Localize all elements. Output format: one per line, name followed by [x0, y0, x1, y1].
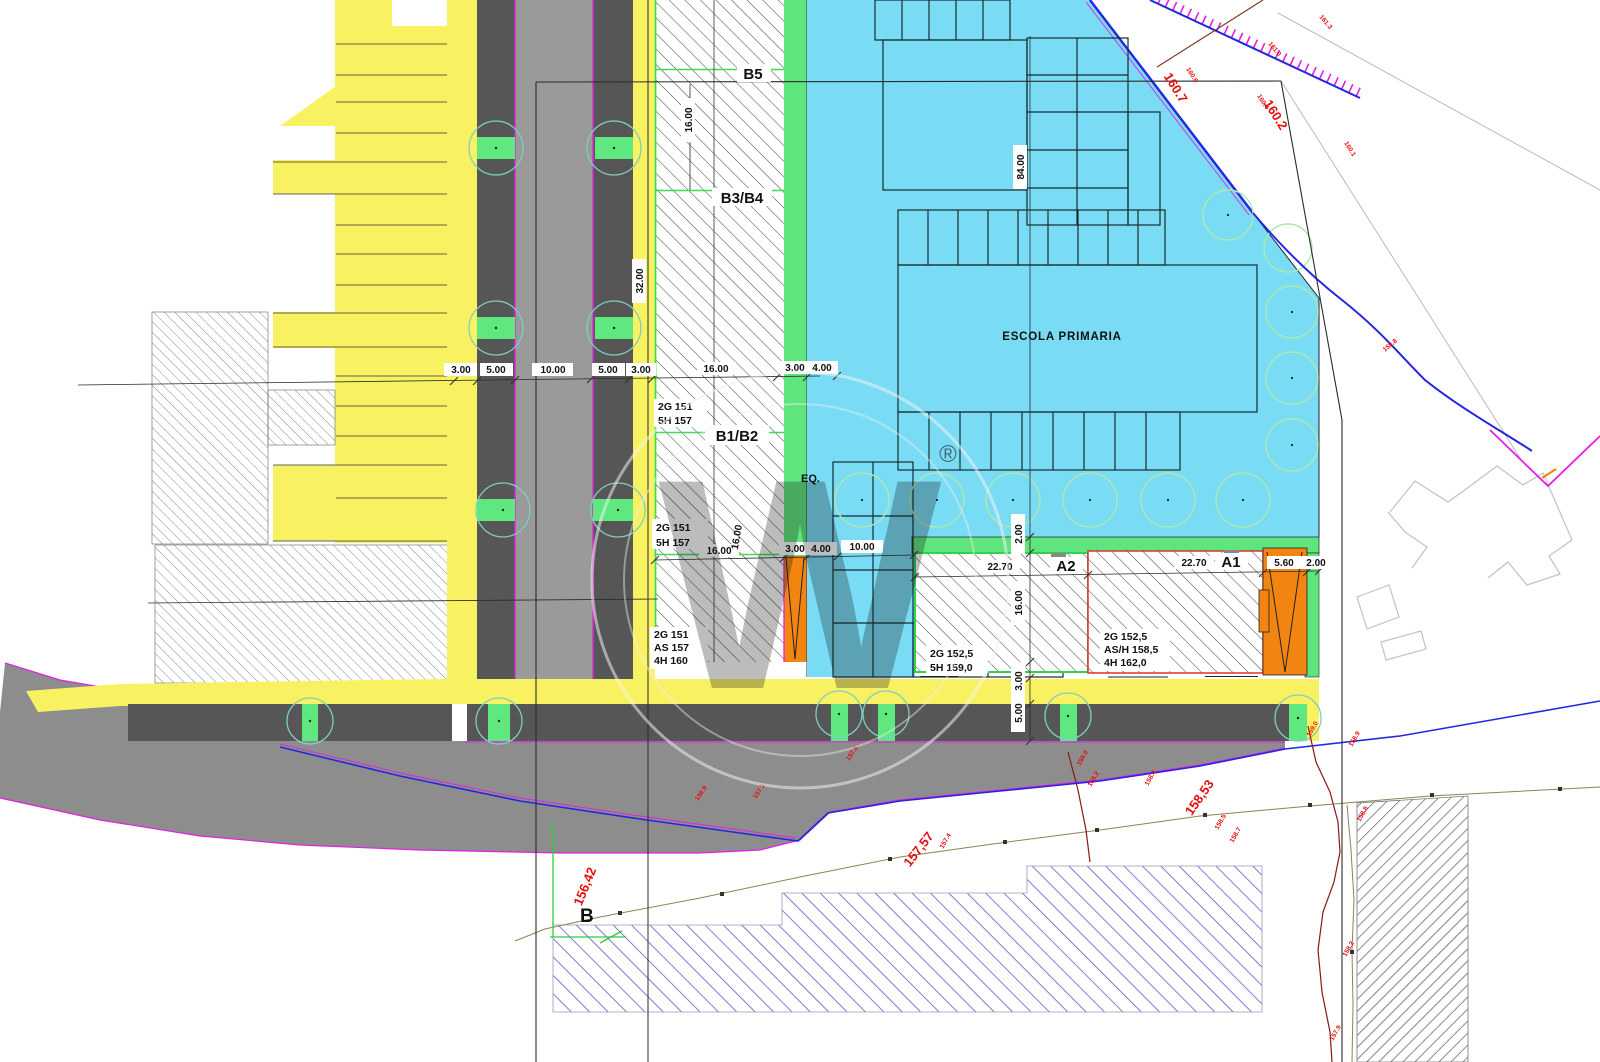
dim-top-5: 16.00 [703, 364, 728, 375]
urban-plan-drawing: 3.00 5.00 10.00 5.00 3.00 16.00 3.00 4.0… [0, 0, 1600, 1062]
elevation-158-53: 158,53 [1182, 777, 1217, 818]
sidewalk-east [633, 0, 655, 679]
dim-a-1: 22.70 [1181, 558, 1206, 569]
dim-sidewalk: 3.00 [1014, 671, 1025, 691]
sidewalk-west [447, 0, 477, 679]
dim-road-length: 32.00 [635, 268, 646, 293]
dim-top-4: 3.00 [631, 365, 651, 376]
dim-a-depth: 16.00 [1014, 590, 1025, 615]
existing-buildings-outline [1357, 466, 1572, 660]
dim-green-walk: 2.00 [1014, 524, 1025, 544]
blue-hatched-zone [553, 866, 1262, 1012]
dim-parking: 5.00 [1014, 703, 1025, 723]
dim-top-2: 10.00 [540, 365, 565, 376]
survey-mark: 158.7 [1229, 826, 1243, 844]
survey-mark: 157.4 [939, 832, 953, 850]
elevation-157-57: 157,57 [900, 829, 936, 870]
zoning-a1-3: 4H 162,0 [1104, 657, 1147, 669]
plan-canvas: 3.00 5.00 10.00 5.00 3.00 16.00 3.00 4.0… [0, 0, 1600, 1062]
watermark-letter: W [658, 416, 944, 752]
survey-mark: 158.9 [1348, 730, 1362, 748]
label-b3b4: B3/B4 [721, 190, 764, 207]
dim-b5-depth: 16.00 [684, 107, 695, 132]
dim-top-3: 5.00 [598, 365, 618, 376]
dark-hatched-zone [1357, 796, 1468, 1062]
hatch-area-west-1 [152, 312, 268, 544]
parking-east [593, 0, 633, 679]
zoning-a1-1: 2G 152,5 [1104, 631, 1147, 643]
survey-mark: 161.3 [1317, 14, 1333, 31]
carriageway [515, 0, 593, 679]
label-a1: A1 [1221, 554, 1240, 571]
watermark-registered-icon: ® [939, 441, 957, 468]
label-b5: B5 [743, 66, 762, 83]
survey-mark: 157.9 [1329, 1024, 1343, 1042]
hatch-area-west-2 [268, 390, 335, 445]
label-point-b: B [580, 906, 594, 927]
dim-top-0: 3.00 [451, 365, 471, 376]
dim-a-2: 5.60 [1274, 558, 1294, 569]
west-lots [152, 0, 477, 683]
survey-mark: 158.2 [1342, 940, 1356, 958]
survey-mark: 160.1 [1342, 140, 1357, 158]
label-escola-primaria: ESCOLA PRIMARIA [1002, 331, 1122, 343]
dim-a-3: 2.00 [1306, 558, 1326, 569]
label-a2: A2 [1056, 558, 1075, 575]
dim-top-1: 5.00 [486, 365, 506, 376]
survey-mark: 158.5 [1214, 813, 1228, 831]
parking-west [477, 0, 515, 679]
elevation-156-42: 156,42 [570, 865, 599, 907]
dim-school-depth: 84.00 [1016, 154, 1027, 179]
hatch-area-west-3 [155, 545, 448, 683]
zoning-a1-2: AS/H 158,5 [1104, 644, 1158, 656]
zoning-b1b2-upper-1: 2G 151 [658, 401, 693, 413]
